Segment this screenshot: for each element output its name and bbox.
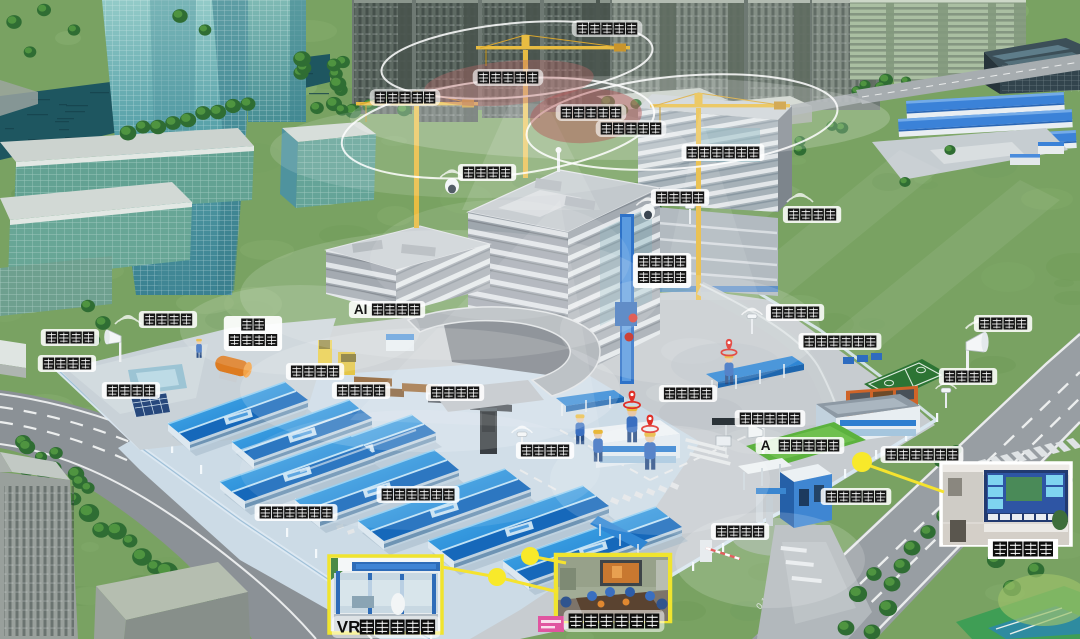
svg-text:VR: VR — [337, 618, 361, 637]
svg-text:AI: AI — [354, 302, 368, 317]
svg-text:A: A — [761, 438, 771, 453]
